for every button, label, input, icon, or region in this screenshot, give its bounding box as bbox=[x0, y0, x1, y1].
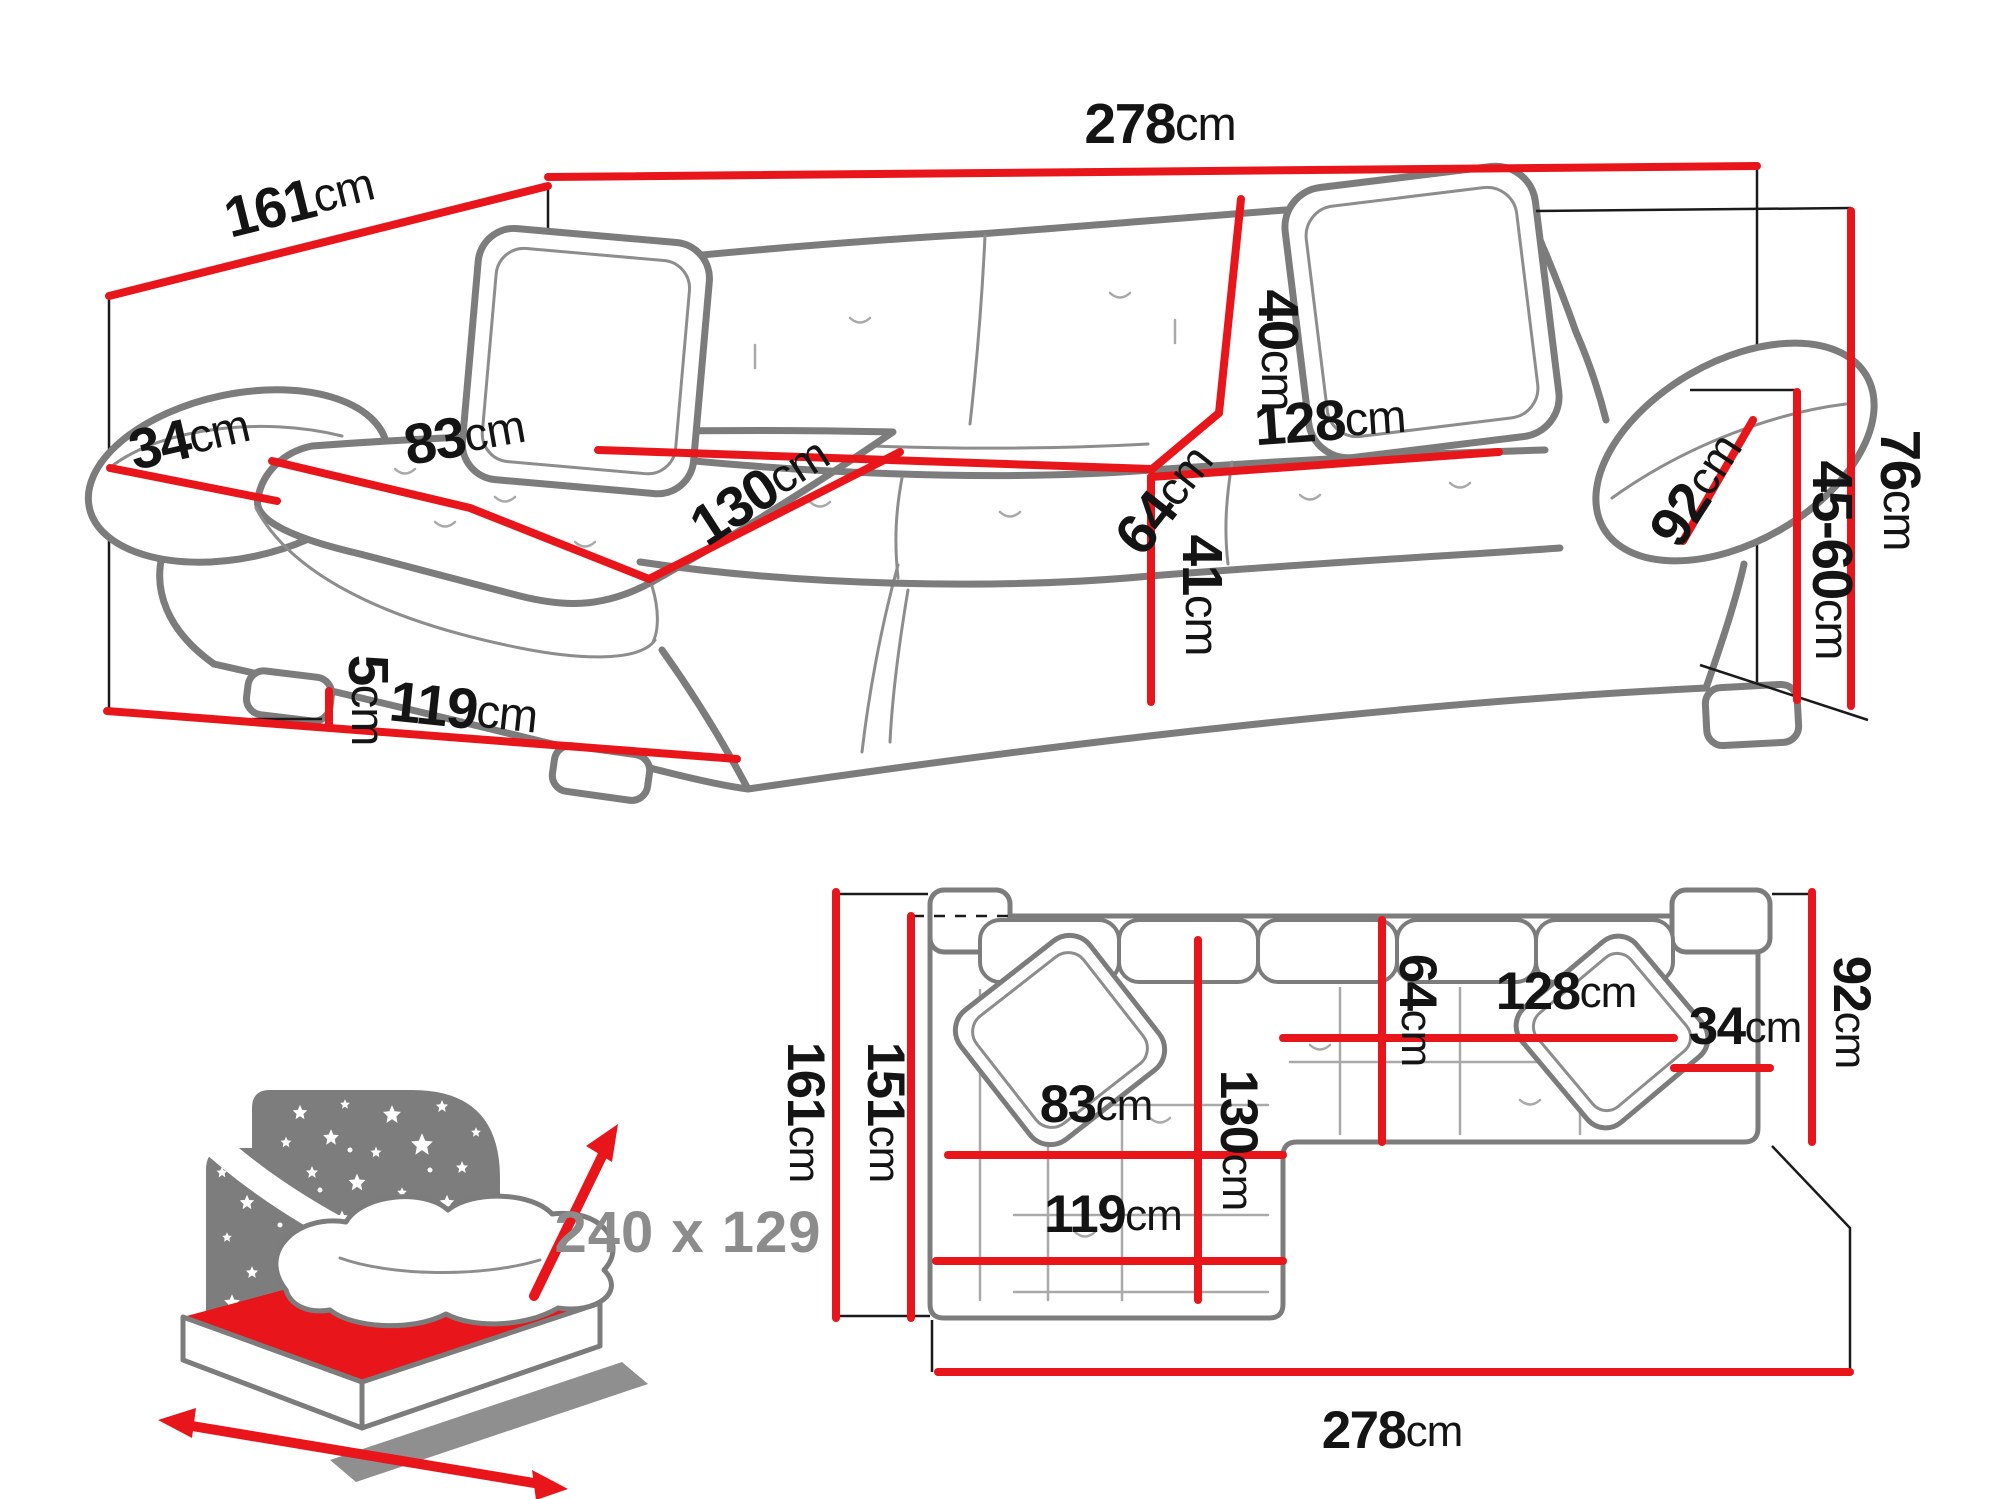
plan-dim-chaise-length-label: 130cm bbox=[1209, 1070, 1268, 1211]
plan-dim-depth-total-label: 161cm bbox=[776, 1042, 835, 1183]
perspective-view: 161cm 278cm 34cm 83cm 130cm 40cm 64cm 12… bbox=[72, 92, 1932, 802]
dim-seat-height-range-label: 45-60cm bbox=[1800, 461, 1864, 660]
dim-total-height-label: 76cm bbox=[1868, 429, 1932, 550]
plan-dim-seat-width-label: 128cm bbox=[1496, 962, 1637, 1021]
plan-dim-armrest-width-label: 34cm bbox=[1689, 997, 1802, 1056]
plan-guide-corner-right bbox=[1772, 1146, 1850, 1372]
sofa-chaise-side-contour bbox=[652, 586, 657, 642]
dim-seat-front-height-label: 41cm bbox=[1170, 534, 1234, 655]
sofa-seat-front-bottom-edge bbox=[640, 548, 1560, 584]
sofa-seat-face-seam bbox=[890, 590, 908, 742]
sofa-base-left-edge bbox=[160, 556, 214, 664]
plan-backrest-cushion bbox=[1258, 920, 1397, 982]
sofa-seat-gap-seam-1 bbox=[896, 478, 902, 578]
sleeping-area-icon: 240 x 129 bbox=[158, 1090, 822, 1499]
plan-dim-armrest-depth-label: 92cm bbox=[1822, 956, 1881, 1069]
sofa-dimension-diagram: 161cm 278cm 34cm 83cm 130cm 40cm 64cm 12… bbox=[0, 0, 2000, 1499]
plan-backrest-cushion bbox=[1119, 920, 1258, 982]
dim-width-total-line bbox=[548, 166, 1757, 177]
sofa-leg-left bbox=[245, 669, 334, 723]
bed-width-arrow-head-right bbox=[532, 1470, 568, 1499]
plan-dim-width-total-label: 278cm bbox=[1322, 1401, 1463, 1460]
guide-total-height-tick bbox=[1536, 208, 1851, 211]
sofa-base-inner-corner-seam bbox=[862, 565, 898, 752]
plan-dim-chaise-total-width-label: 119cm bbox=[1044, 1185, 1182, 1244]
bed-width-arrow-head-left bbox=[158, 1408, 196, 1438]
sofa-chaise-base-right-face bbox=[662, 650, 748, 789]
plan-dim-seat-depth-label: 64cm bbox=[1388, 954, 1447, 1067]
sofa-backrest-seam bbox=[970, 236, 985, 424]
sleeping-area-label: 240 x 129 bbox=[554, 1200, 821, 1265]
dim-width-total-label: 278cm bbox=[1084, 92, 1235, 156]
plan-dim-depth-inner-label: 151cm bbox=[856, 1042, 915, 1183]
plan-dim-chaise-seat-width-label: 83cm bbox=[1040, 1075, 1153, 1134]
dim-backrest-height-line bbox=[1219, 199, 1241, 413]
plan-right-armrest bbox=[1672, 890, 1770, 952]
plan-view: 161cm 151cm 130cm 64cm 83cm 119cm 128cm … bbox=[776, 890, 1881, 1460]
